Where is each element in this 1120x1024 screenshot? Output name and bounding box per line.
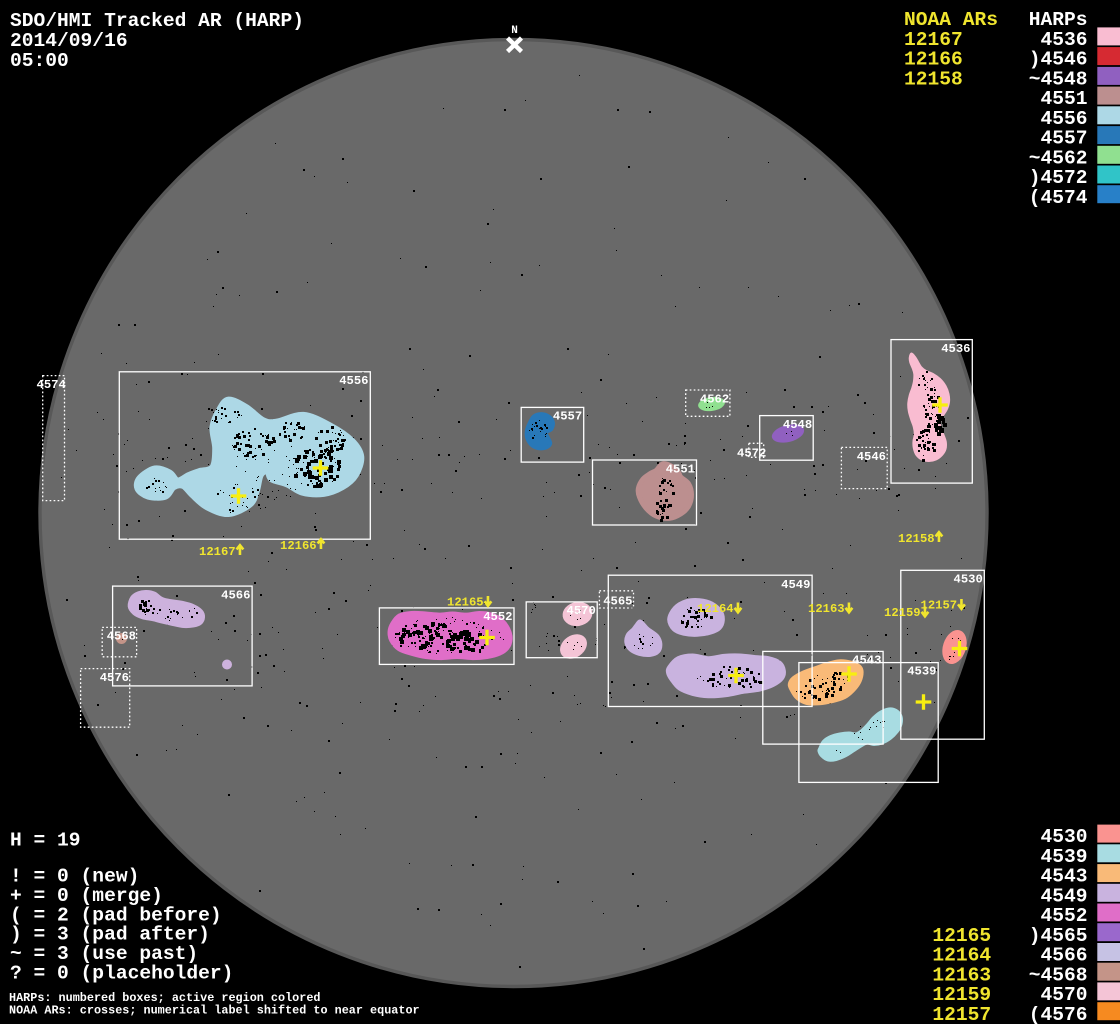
svg-text:05:00: 05:00 <box>10 50 69 72</box>
svg-text:12159: 12159 <box>884 606 921 620</box>
svg-text:SDO/HMI Tracked AR (HARP): SDO/HMI Tracked AR (HARP) <box>10 10 304 32</box>
svg-text:4548: 4548 <box>783 418 812 432</box>
svg-text:4551: 4551 <box>666 462 695 476</box>
svg-text:4530: 4530 <box>954 573 983 587</box>
svg-text:4566: 4566 <box>1040 945 1087 967</box>
svg-text:4543: 4543 <box>1040 866 1087 888</box>
svg-text:4551: 4551 <box>1040 88 1087 110</box>
svg-text:12163: 12163 <box>932 964 991 986</box>
svg-text:)4572: )4572 <box>1029 167 1088 189</box>
svg-text:4576: 4576 <box>100 671 129 685</box>
svg-text:4552: 4552 <box>483 610 512 624</box>
svg-text:4536: 4536 <box>941 342 970 356</box>
svg-text:~4548: ~4548 <box>1029 69 1088 91</box>
svg-text:12163: 12163 <box>808 602 845 616</box>
svg-text:4565: 4565 <box>603 594 632 608</box>
svg-text:4552: 4552 <box>1040 905 1087 927</box>
svg-text:4574: 4574 <box>37 378 66 392</box>
svg-text:4556: 4556 <box>339 374 368 388</box>
svg-text:4536: 4536 <box>1040 29 1087 51</box>
svg-text:HARPs: HARPs <box>1029 9 1088 31</box>
svg-text:)4565: )4565 <box>1029 925 1088 947</box>
svg-text:4539: 4539 <box>1040 846 1087 868</box>
svg-text:~4562: ~4562 <box>1029 147 1088 169</box>
svg-text:4546: 4546 <box>857 450 886 464</box>
svg-text:NOAA ARs: crosses; numerical l: NOAA ARs: crosses; numerical label shift… <box>9 1004 420 1018</box>
svg-text:4530: 4530 <box>1040 826 1087 848</box>
svg-text:12159: 12159 <box>932 984 991 1006</box>
svg-text:4539: 4539 <box>907 665 936 679</box>
svg-text:4570: 4570 <box>1040 984 1087 1006</box>
svg-text:4566: 4566 <box>221 588 250 602</box>
svg-text:12165: 12165 <box>932 925 991 947</box>
svg-text:NOAA ARs: NOAA ARs <box>904 9 998 31</box>
svg-text:4549: 4549 <box>1040 885 1087 907</box>
svg-text:)4546: )4546 <box>1029 49 1088 71</box>
svg-text:4572: 4572 <box>737 447 766 461</box>
svg-text:(4576: (4576 <box>1029 1004 1088 1024</box>
svg-text:12164: 12164 <box>697 602 734 616</box>
svg-text:4557: 4557 <box>553 410 582 424</box>
svg-text:12157: 12157 <box>932 1004 991 1024</box>
svg-text:12157: 12157 <box>921 599 958 613</box>
svg-text:4568: 4568 <box>107 630 136 644</box>
svg-text:? = 0 (placeholder): ? = 0 (placeholder) <box>10 963 233 985</box>
svg-text:~4568: ~4568 <box>1029 964 1088 986</box>
svg-text:12164: 12164 <box>932 945 991 967</box>
svg-text:12166: 12166 <box>904 49 963 71</box>
svg-text:N: N <box>511 25 518 37</box>
svg-text:4562: 4562 <box>700 393 729 407</box>
svg-text:12166: 12166 <box>280 539 317 553</box>
svg-text:4549: 4549 <box>781 578 810 592</box>
svg-text:4556: 4556 <box>1040 108 1087 130</box>
svg-text:4570: 4570 <box>567 604 596 618</box>
svg-text:12167: 12167 <box>904 29 963 51</box>
svg-text:(4574: (4574 <box>1029 187 1088 209</box>
svg-text:4543: 4543 <box>852 654 881 668</box>
svg-text:12158: 12158 <box>898 532 935 546</box>
svg-text:2014/09/16: 2014/09/16 <box>10 30 128 52</box>
svg-text:H = 19: H = 19 <box>10 830 81 852</box>
svg-text:12165: 12165 <box>447 596 484 610</box>
svg-text:12167: 12167 <box>199 545 236 559</box>
svg-text:4557: 4557 <box>1040 128 1087 150</box>
svg-text:12158: 12158 <box>904 69 963 91</box>
